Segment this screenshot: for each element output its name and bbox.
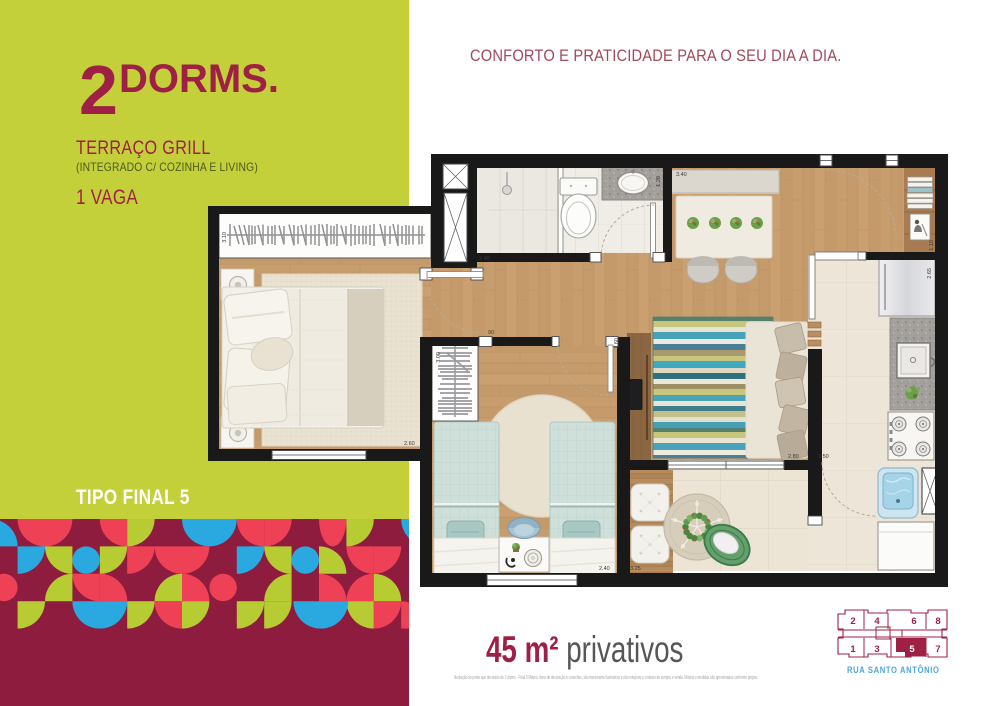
svg-text:2.60: 2.60 xyxy=(404,441,415,447)
svg-text:1: 1 xyxy=(850,644,856,655)
svg-text:4: 4 xyxy=(874,616,880,627)
svg-text:1.60: 1.60 xyxy=(614,338,620,349)
svg-text:3.40: 3.40 xyxy=(676,172,687,178)
svg-text:5: 5 xyxy=(909,644,915,655)
svg-text:2.40: 2.40 xyxy=(479,256,490,262)
svg-text:7: 7 xyxy=(935,644,940,655)
svg-text:2: 2 xyxy=(850,616,855,627)
svg-text:8: 8 xyxy=(935,616,940,627)
svg-text:2.65: 2.65 xyxy=(927,268,933,279)
svg-text:2.40: 2.40 xyxy=(599,566,610,572)
svg-text:90: 90 xyxy=(488,330,494,336)
svg-text:1.10: 1.10 xyxy=(929,240,935,251)
svg-text:3.10: 3.10 xyxy=(222,232,228,243)
svg-text:2.80: 2.80 xyxy=(788,454,799,460)
svg-text:1.20: 1.20 xyxy=(656,176,662,187)
svg-text:3.00: 3.00 xyxy=(436,352,442,363)
svg-text:6: 6 xyxy=(911,616,916,627)
svg-text:3.25: 3.25 xyxy=(630,566,641,572)
svg-text:3: 3 xyxy=(874,644,879,655)
svg-text:1.50: 1.50 xyxy=(818,454,829,460)
